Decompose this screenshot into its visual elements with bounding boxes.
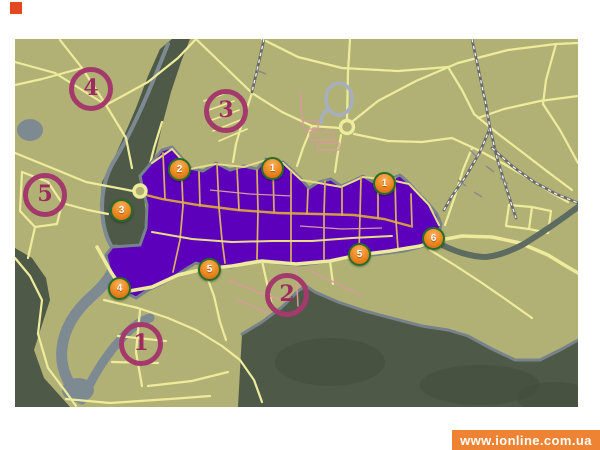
- watermark-banner: www.ionline.com.ua: [452, 430, 600, 450]
- orange-poi-marker-2: 2: [168, 158, 191, 181]
- circle-annotation-1: 1: [119, 322, 163, 366]
- orange-poi-marker-3: 3: [110, 199, 133, 222]
- circle-annotation-2: 2: [265, 273, 309, 317]
- city-map-image: 2113455643512: [15, 39, 578, 407]
- orange-poi-marker-5: 5: [348, 243, 371, 266]
- circle-annotation-4: 4: [69, 67, 113, 111]
- orange-poi-marker-1: 1: [261, 157, 284, 180]
- orange-poi-marker-1: 1: [373, 172, 396, 195]
- page: 2113455643512 www.ionline.com.ua: [0, 0, 600, 450]
- orange-poi-marker-6: 6: [422, 227, 445, 250]
- circle-annotation-3: 3: [204, 89, 248, 133]
- orange-poi-marker-4: 4: [108, 277, 131, 300]
- orange-poi-marker-5: 5: [198, 258, 221, 281]
- markers-layer: 2113455643512: [15, 39, 578, 407]
- watermark-text: www.ionline.com.ua: [460, 433, 592, 448]
- logo-square-icon: [10, 2, 22, 14]
- circle-annotation-5: 5: [23, 173, 67, 217]
